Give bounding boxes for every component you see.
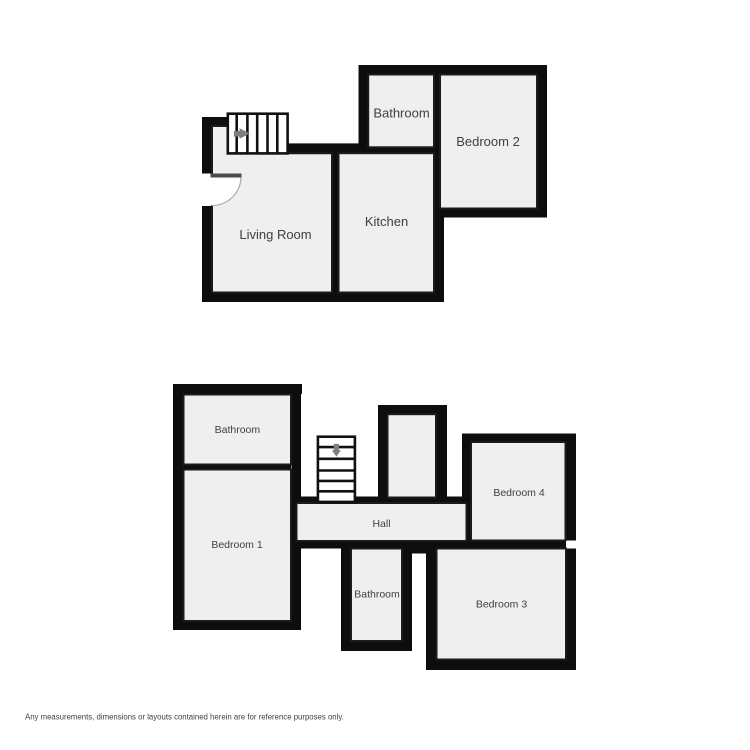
- svg-text:Bedroom 2: Bedroom 2: [456, 134, 520, 149]
- svg-text:Hall: Hall: [372, 518, 390, 530]
- svg-text:Living Room: Living Room: [239, 227, 311, 242]
- svg-text:Any measurements, dimensions o: Any measurements, dimensions or layouts …: [25, 713, 344, 722]
- svg-text:Bedroom 1: Bedroom 1: [211, 539, 263, 551]
- svg-text:Bedroom 4: Bedroom 4: [493, 487, 545, 499]
- svg-text:Bathroom: Bathroom: [373, 106, 429, 121]
- svg-text:Bathroom: Bathroom: [354, 589, 400, 601]
- svg-text:Bathroom: Bathroom: [215, 424, 261, 436]
- svg-text:Kitchen: Kitchen: [365, 214, 408, 229]
- svg-text:Bedroom 3: Bedroom 3: [476, 599, 528, 611]
